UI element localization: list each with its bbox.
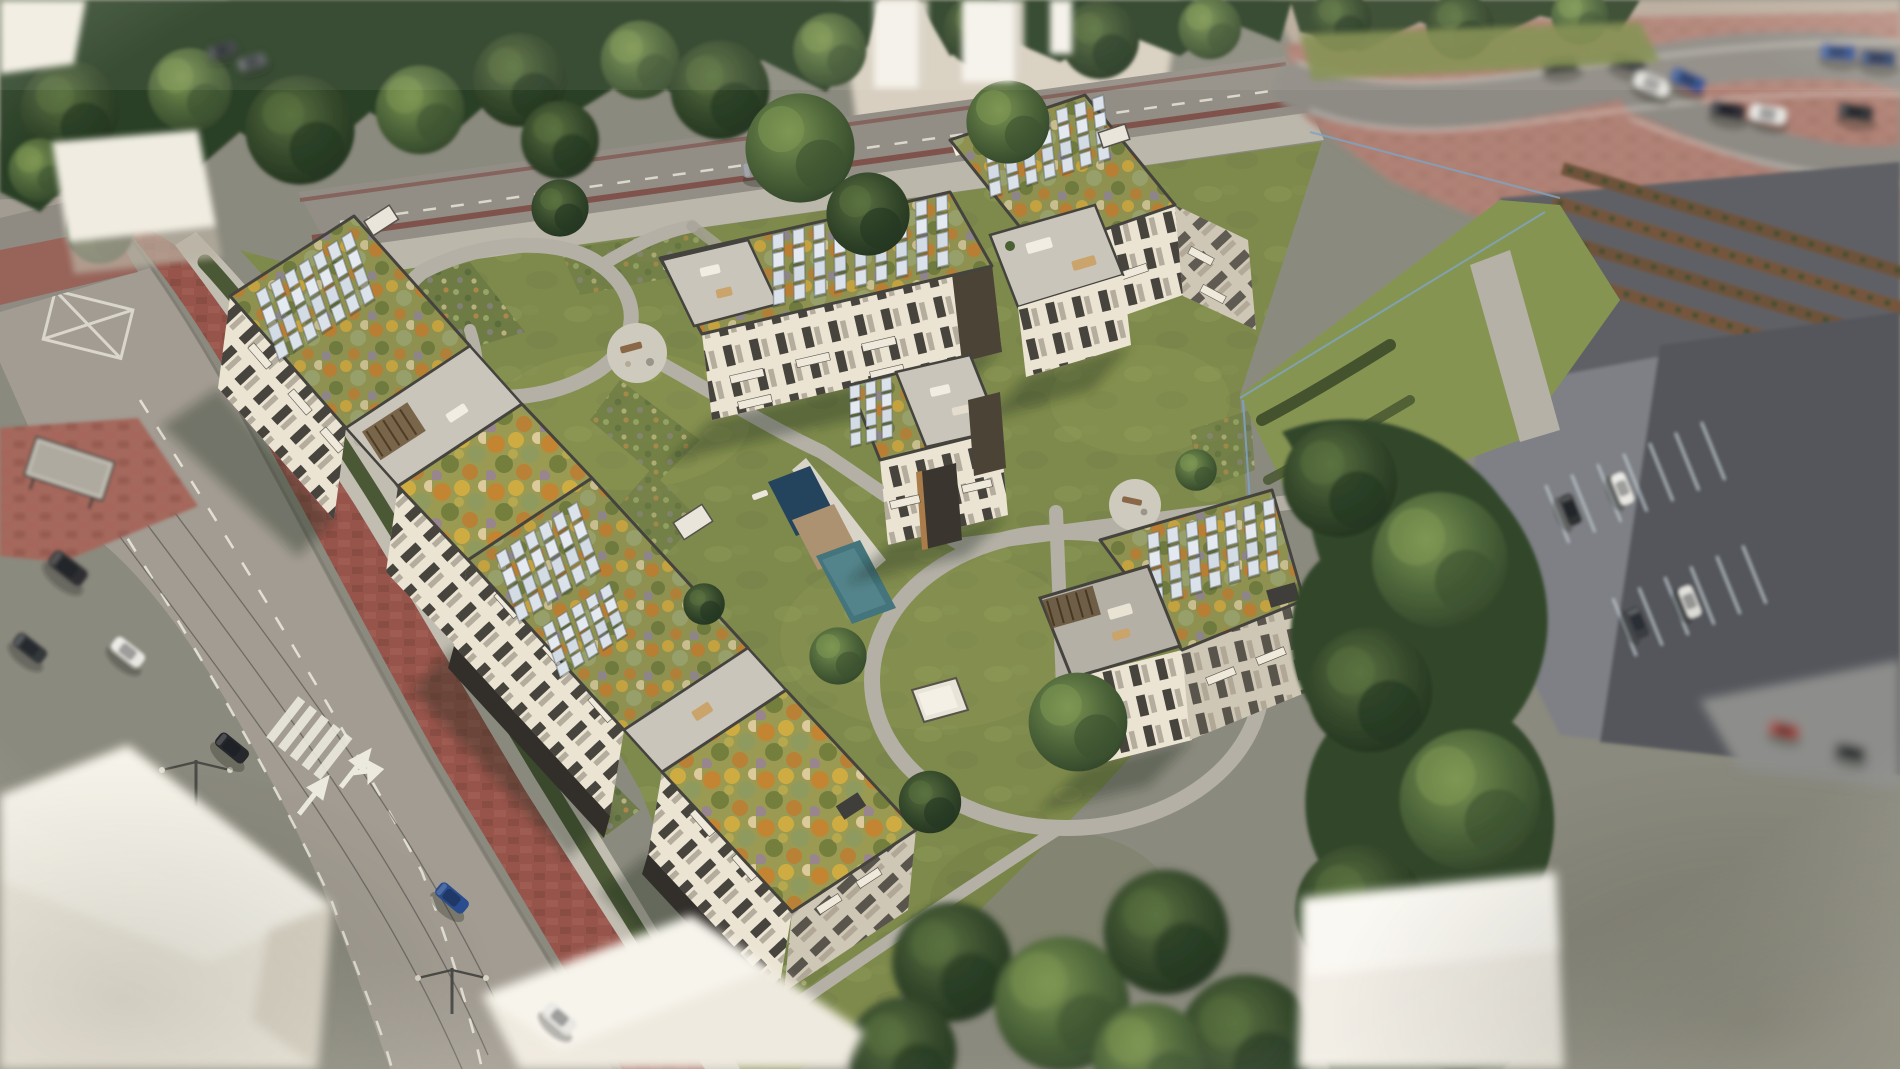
aerial-render	[0, 0, 1900, 1069]
haze-top	[0, 0, 1900, 90]
aerial-render-canvas	[0, 0, 1900, 1069]
